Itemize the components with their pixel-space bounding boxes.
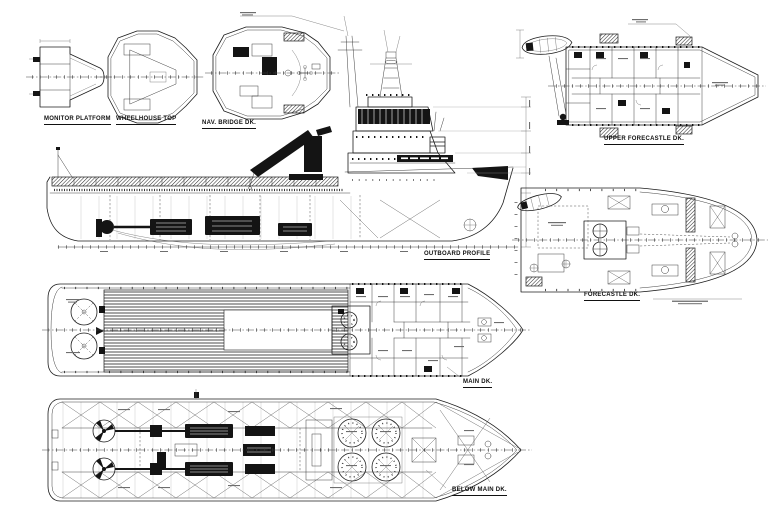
ga-drawing-sheet: MONITOR PLATFORM WHEELHOUSE TOP NAV. BRI… — [0, 0, 768, 512]
drawing-element — [596, 58, 606, 59]
label-main-dk: MAIN DK. — [463, 379, 492, 388]
drawing-element — [627, 227, 639, 235]
drawing-element — [678, 303, 702, 304]
ga-drawing — [0, 0, 768, 512]
drawing-element — [376, 301, 447, 360]
drawing-element — [52, 462, 58, 470]
view-upper-forecastle-dk — [516, 19, 766, 137]
drawing-element — [640, 52, 648, 58]
drawing-element — [380, 431, 391, 432]
label-wheelhouse-top: WHEELHOUSE TOP — [116, 116, 176, 125]
workboat — [516, 190, 563, 214]
radar-scanner — [385, 60, 397, 64]
drawing-element — [618, 100, 626, 106]
view-main-dk — [42, 284, 530, 377]
drawing-element — [596, 52, 604, 58]
drawing-element — [428, 360, 438, 361]
drawing-element — [118, 487, 130, 488]
drawing-element — [338, 309, 344, 314]
drawing-element — [482, 336, 487, 341]
drawing-element — [150, 425, 162, 437]
machinery — [278, 223, 312, 236]
drawing-element — [574, 52, 582, 58]
drawing-element — [386, 52, 396, 58]
ladder-hatch — [686, 198, 695, 232]
drawing-element — [608, 271, 630, 284]
exhaust-pipes — [434, 112, 444, 131]
drawing-element — [68, 302, 77, 303]
console-unit — [233, 47, 249, 57]
rescue-boat — [521, 33, 573, 56]
equipment — [252, 44, 272, 56]
drawing-element — [557, 120, 569, 125]
drawing-element — [228, 411, 240, 412]
stair-hatch — [526, 277, 542, 286]
drawing-element — [378, 350, 388, 351]
view-nav-bridge-dk — [205, 12, 344, 119]
drawing-element — [344, 16, 348, 36]
drawing-element — [529, 100, 530, 107]
drawing-element — [401, 157, 408, 159]
drawing-element — [400, 296, 410, 297]
drawing-element — [99, 347, 105, 354]
winch — [652, 265, 678, 276]
drawing-element — [618, 58, 628, 59]
drawing-element — [424, 294, 434, 295]
helm-console — [262, 57, 277, 75]
view-outboard-profile — [47, 16, 531, 252]
drawing-element — [240, 86, 258, 96]
leader-line — [628, 24, 690, 36]
pump-unit — [157, 452, 166, 468]
drawing-element — [66, 352, 80, 353]
drawing-element — [640, 58, 650, 59]
drawing-element — [448, 296, 458, 297]
label-upper-forecastle-dk: UPPER FORECASTLE DK. — [604, 136, 684, 145]
emergency-gen-room — [538, 206, 588, 248]
hawse-pipe — [732, 233, 738, 239]
drawing-element — [441, 157, 448, 159]
console — [124, 44, 150, 55]
drawing-element — [316, 126, 332, 136]
equipment — [252, 96, 272, 108]
drawing-element — [636, 21, 646, 22]
drawing-element — [380, 465, 391, 466]
drawing-element — [40, 39, 70, 43]
console — [124, 99, 150, 110]
drawing-element — [494, 322, 504, 323]
drawing-element — [464, 430, 474, 431]
stair-hatch — [284, 33, 304, 41]
drawing-element — [640, 108, 650, 109]
drawing-element — [240, 12, 256, 13]
drawing-element — [529, 146, 530, 153]
drawing-element — [485, 453, 491, 459]
drawing-element — [280, 251, 288, 252]
drawing-element — [661, 205, 668, 212]
davit-winch — [560, 114, 566, 120]
drawing-element — [158, 409, 170, 410]
drawing-element — [370, 30, 412, 64]
centerline-arrow — [96, 327, 104, 335]
drawing-element — [160, 251, 168, 252]
stair-hatch — [676, 126, 692, 134]
label-below-main-dk: BELOW MAIN DK. — [452, 487, 507, 496]
drawing-element — [452, 288, 460, 294]
winch-symbol — [33, 91, 40, 96]
drawing-element — [402, 350, 412, 351]
boat-engine — [526, 42, 534, 51]
stair-hatch — [676, 37, 692, 45]
drawing-element — [102, 429, 106, 433]
drawing-element — [715, 85, 725, 86]
drawing-element — [56, 147, 60, 150]
drawing-element — [245, 464, 275, 474]
drawing-element — [346, 431, 357, 432]
drawing-element — [458, 436, 474, 445]
crane-base — [289, 174, 323, 180]
drawing-element — [75, 303, 93, 321]
winch-symbol — [33, 57, 40, 62]
drawing-element — [672, 301, 708, 302]
drawing-element — [710, 206, 725, 228]
drawing-element — [330, 408, 342, 409]
drawing-element — [410, 157, 418, 159]
drawing-element — [400, 251, 408, 252]
drawing-element — [485, 441, 491, 447]
drawing-element — [346, 465, 357, 466]
engine — [205, 216, 260, 235]
drawing-element — [548, 222, 566, 223]
drawing-element — [482, 320, 487, 325]
drawing-element — [521, 201, 529, 209]
leader-line — [240, 16, 344, 31]
drawing-element — [100, 251, 108, 252]
view-wheelhouse-top — [100, 31, 205, 123]
drawing-element — [608, 196, 630, 209]
meeting-room-label — [712, 82, 728, 83]
drawing-element — [661, 266, 668, 273]
drawing-element — [596, 108, 606, 109]
view-monitor-platform — [26, 39, 112, 107]
wheelhouse-windows — [358, 109, 430, 124]
drawing-element — [431, 157, 439, 159]
drawing-element — [118, 409, 130, 410]
drawing-element — [102, 467, 106, 471]
drawing-element — [458, 455, 474, 464]
deckhouse-tier2 — [353, 131, 438, 153]
drawing-element — [340, 251, 348, 252]
drawing-element — [662, 108, 670, 114]
drawing-element — [710, 252, 725, 274]
label-monitor-platform: MONITOR PLATFORM — [44, 116, 111, 125]
drawing-element — [242, 14, 253, 15]
drawing-element — [420, 157, 429, 159]
stair-hatch — [600, 34, 618, 43]
drawing-element — [52, 430, 58, 438]
drawing-element — [454, 346, 464, 347]
drawing-element — [158, 487, 170, 488]
drawing-element — [627, 245, 639, 253]
drawing-element — [551, 225, 563, 226]
drawing-element — [632, 19, 648, 20]
drawing-element — [66, 299, 80, 300]
stair-hatch — [284, 105, 304, 113]
drawing-element — [378, 296, 388, 297]
drawing-element — [312, 64, 320, 69]
drawing-element — [539, 37, 556, 53]
ladder-hatch — [686, 248, 695, 282]
drawing-element — [99, 306, 105, 313]
drawing-element — [478, 334, 491, 342]
foremast — [338, 36, 362, 107]
drawing-element — [356, 296, 366, 297]
vent-symbol — [194, 392, 199, 398]
drawing-element — [529, 168, 530, 175]
drawing-element — [424, 366, 432, 372]
label-forecastle-dk: FORECASTLE DK. — [584, 292, 640, 301]
drawing-element — [538, 254, 564, 272]
label-outboard-profile: OUTBOARD PROFILE — [424, 251, 490, 260]
drawing-element — [356, 288, 364, 294]
drawing-element — [100, 220, 114, 234]
drawing-element — [684, 62, 690, 68]
drawing-element — [478, 318, 491, 326]
drawing-element — [529, 122, 530, 129]
drawing-element — [400, 288, 408, 294]
winch — [652, 204, 678, 215]
monitor-platform-profile — [368, 97, 412, 107]
drawing-element — [228, 485, 240, 486]
drawing-element — [330, 487, 342, 488]
hawse-pipe — [732, 241, 738, 247]
drawing-element — [516, 30, 524, 58]
drawing-element — [220, 251, 228, 252]
drawing-element — [245, 426, 275, 436]
stern-mast — [58, 150, 72, 177]
drawing-element — [464, 464, 474, 465]
view-forecastle-dk — [512, 188, 768, 304]
drawing-element — [111, 34, 194, 120]
label-nav-bridge-dk: NAV. BRIDGE DK. — [202, 120, 256, 129]
view-below-main-dk — [42, 389, 532, 501]
